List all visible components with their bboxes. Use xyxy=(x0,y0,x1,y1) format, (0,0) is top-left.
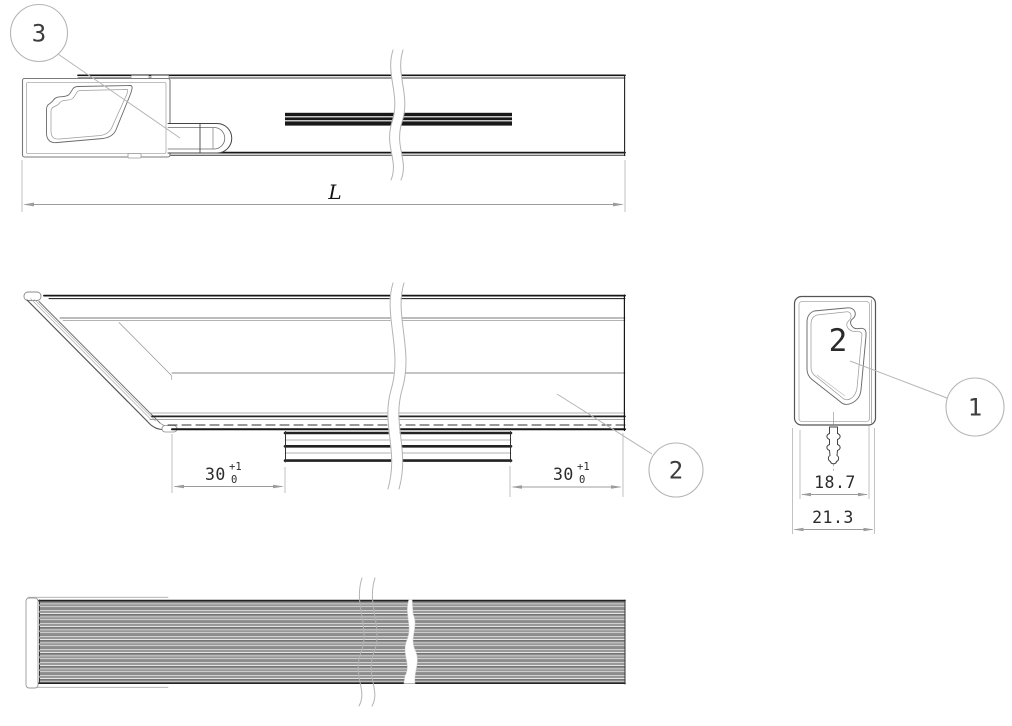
balloon-1-number: 1 xyxy=(968,394,982,422)
drawing-sheet: 2 L 30 +1 0 xyxy=(0,0,1012,726)
svg-text:0: 0 xyxy=(231,474,237,486)
top-view-end-cap xyxy=(23,76,171,159)
bottom-view-ribbed-surface xyxy=(39,600,625,684)
end-view: 2 xyxy=(795,297,876,471)
dimensions: L 30 +1 0 30 +1 0 xyxy=(22,160,875,534)
dimension-foot-right: 30 +1 0 xyxy=(510,433,623,497)
top-view-tongue-slot xyxy=(168,124,232,154)
svg-text:18.7: 18.7 xyxy=(814,473,856,492)
dimension-foot-left: 30 +1 0 xyxy=(172,434,285,493)
svg-text:+1: +1 xyxy=(229,461,242,473)
technical-drawing: 2 L 30 +1 0 xyxy=(0,0,1012,726)
top-view xyxy=(23,50,626,180)
fastener-pin xyxy=(827,427,840,464)
side-view-chamfer-lines xyxy=(27,299,177,433)
svg-text:30: 30 xyxy=(553,465,574,484)
svg-text:+1: +1 xyxy=(577,461,590,473)
svg-text:21.3: 21.3 xyxy=(812,508,854,527)
end-view-mold-number: 2 xyxy=(829,323,848,359)
side-view-end-cap-edge xyxy=(24,292,41,301)
bottom-view xyxy=(26,578,625,706)
bottom-view-cap-edge xyxy=(26,598,38,688)
balloon-2-number: 2 xyxy=(669,457,683,485)
balloon-2-leader xyxy=(557,394,652,454)
side-view-upper-groove-lines xyxy=(60,318,625,321)
dimension-L-label: L xyxy=(327,180,341,204)
svg-text:0: 0 xyxy=(579,474,585,486)
balloon-3-number: 3 xyxy=(32,20,46,48)
svg-text:30: 30 xyxy=(205,465,226,484)
dimension-overall-length: L xyxy=(22,160,625,212)
side-view-top-edge xyxy=(44,296,625,299)
side-view xyxy=(24,283,625,489)
